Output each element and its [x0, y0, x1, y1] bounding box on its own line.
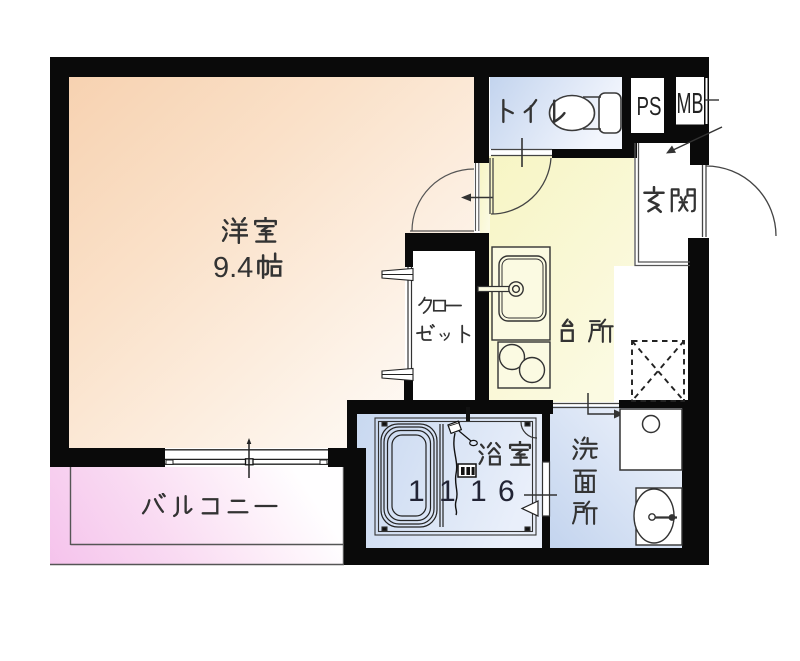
svg-text:9.4: 9.4 — [213, 252, 253, 284]
svg-text:PS: PS — [637, 91, 662, 121]
svg-text:MB: MB — [677, 88, 704, 120]
